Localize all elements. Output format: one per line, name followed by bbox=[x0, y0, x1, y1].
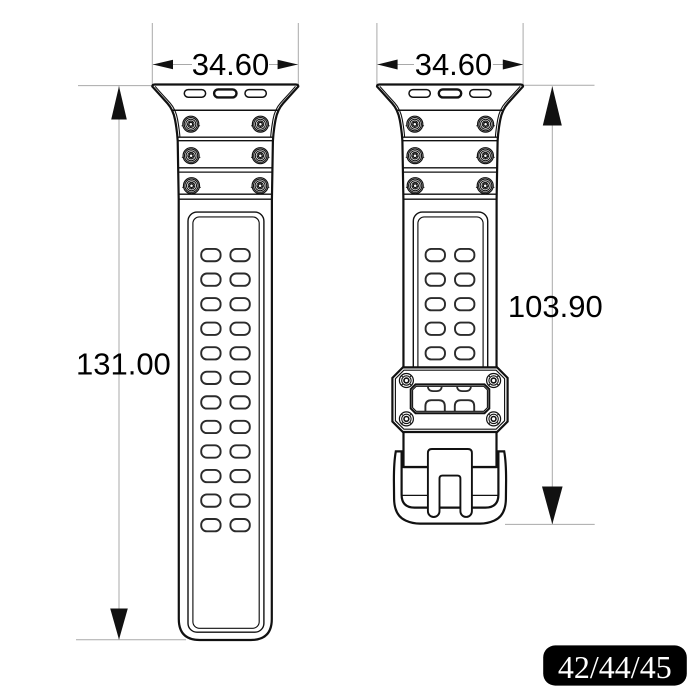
svg-text:34.60: 34.60 bbox=[192, 47, 270, 82]
svg-text:42/44/45: 42/44/45 bbox=[558, 649, 672, 685]
svg-text:103.90: 103.90 bbox=[508, 289, 603, 324]
svg-text:34.60: 34.60 bbox=[415, 47, 493, 82]
svg-text:131.00: 131.00 bbox=[76, 347, 171, 382]
